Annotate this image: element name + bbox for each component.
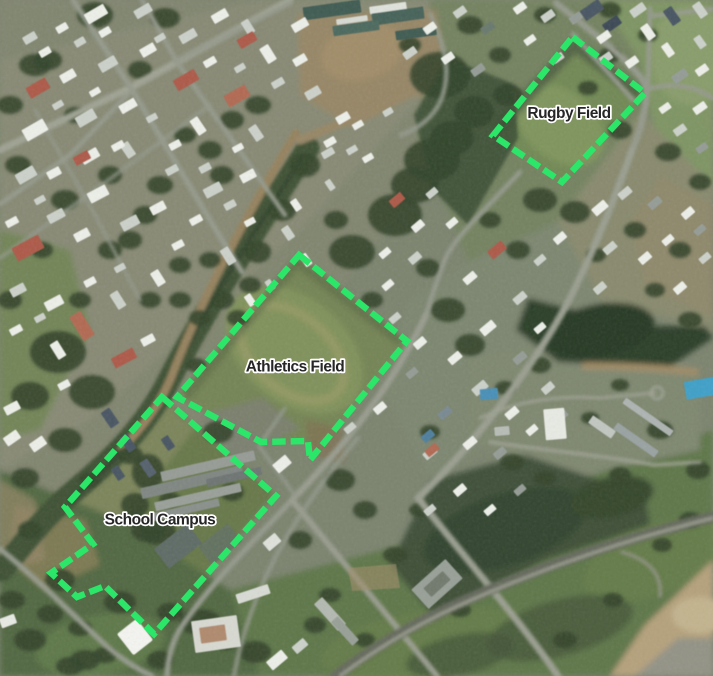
svg-text:Athletics Field: Athletics Field [246, 359, 344, 376]
svg-text:Rugby Field: Rugby Field [527, 105, 610, 122]
svg-text:School Campus: School Campus [105, 512, 216, 529]
